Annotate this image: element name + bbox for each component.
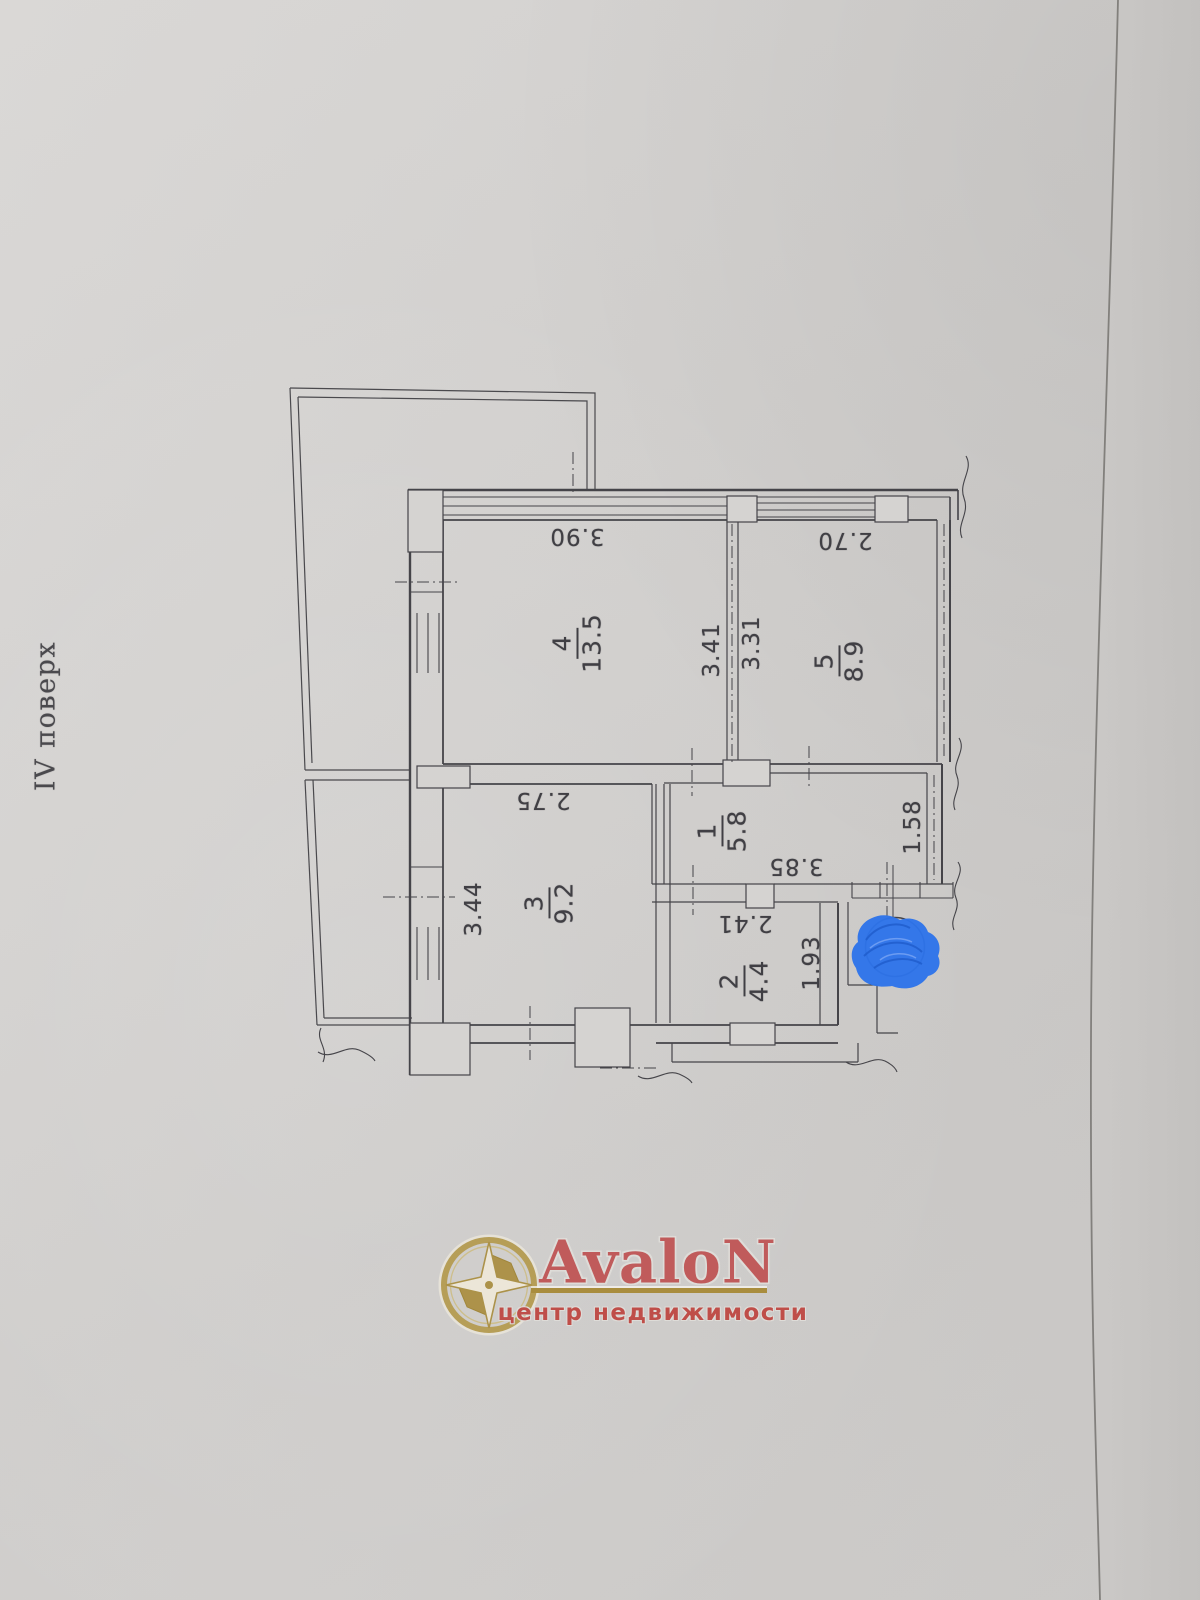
room-label-2: 2 4.4: [717, 960, 772, 1003]
dimension-label: 3.44: [461, 881, 487, 936]
room-label-1: 1 5.8: [695, 810, 750, 853]
dimension-label: 3.31: [739, 615, 765, 670]
room-number: 5: [812, 646, 841, 677]
logo-tagline-text: центр недвижимости: [498, 1300, 809, 1326]
dimension-label: 1.58: [900, 799, 926, 854]
room-number: 1: [695, 816, 724, 847]
room-label-4: 4 13.5: [550, 613, 605, 673]
walls: [408, 490, 958, 1075]
room-area: 13.5: [578, 613, 605, 673]
floor-plan-drawing: [0, 0, 1200, 1600]
room-area: 9.2: [550, 882, 577, 925]
logo-brand-text: AvaloN: [539, 1228, 777, 1297]
dimension-label: 3.41: [699, 622, 725, 677]
blue-marker-annotation: [852, 915, 940, 988]
dimension-label: 1.93: [799, 935, 825, 990]
paper-fold-edge: [1091, 0, 1200, 1600]
room-label-3: 3 9.2: [522, 882, 577, 925]
floor-label: IV поверх: [31, 641, 62, 791]
room-number: 2: [717, 966, 746, 997]
wall-blocks: [408, 490, 908, 1075]
room-area: 4.4: [745, 960, 772, 1003]
room-label-5: 5 8.9: [812, 640, 867, 683]
logo-underline: [531, 1288, 767, 1293]
dimension-label: 3.85: [768, 853, 823, 879]
room-area: 8.9: [840, 640, 867, 683]
dimension-label: 2.70: [817, 527, 872, 553]
dimension-label: 2.75: [515, 787, 570, 813]
room-number: 4: [550, 628, 579, 659]
photographed-floor-plan-document: IV поверх 4 13.5 5 8.9 1 5.8 3 9.2 2 4.4…: [0, 0, 1200, 1600]
dimension-label: 2.41: [717, 910, 772, 936]
room-area: 5.8: [723, 810, 750, 853]
room-number: 3: [522, 888, 551, 919]
dimension-label: 3.90: [549, 523, 604, 549]
